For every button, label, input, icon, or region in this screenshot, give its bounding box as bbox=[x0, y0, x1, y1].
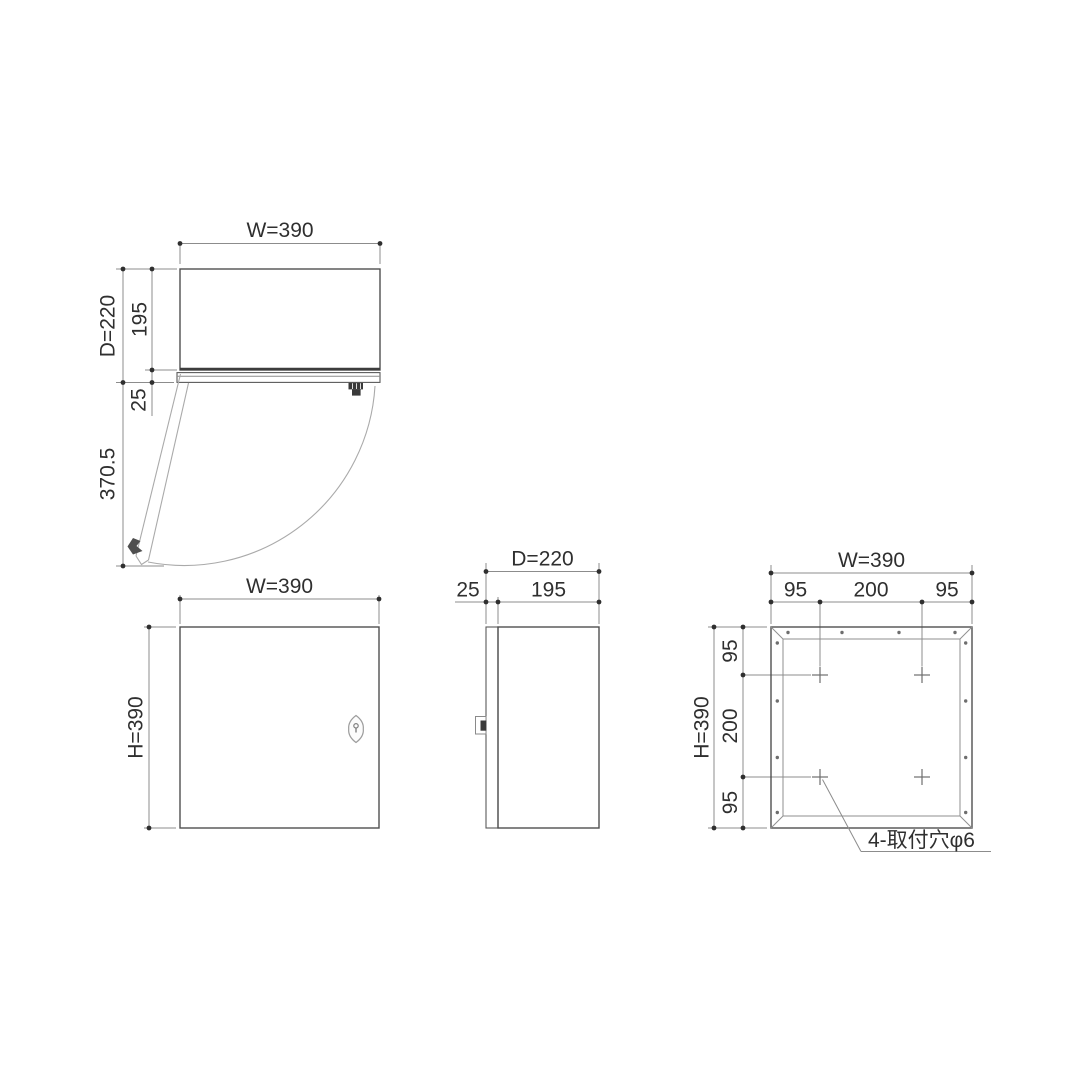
top-view: W=390 D=220 195 25 370.5 bbox=[97, 219, 383, 568]
dim-dot bbox=[970, 571, 975, 576]
dim-dot bbox=[741, 673, 746, 678]
rivet-dot bbox=[964, 641, 967, 644]
flange-miter bbox=[771, 816, 783, 828]
front-view: W=390 H=390 bbox=[125, 575, 382, 830]
latch-grip bbox=[352, 389, 361, 395]
dim-dot bbox=[377, 597, 382, 602]
mounting-holes bbox=[812, 667, 930, 785]
open-door-inner-line bbox=[149, 383, 189, 560]
dim-dot bbox=[496, 600, 501, 605]
dim-label-span-center: 200 bbox=[853, 579, 888, 602]
rivet-dot bbox=[964, 756, 967, 759]
rear-panel-outline bbox=[771, 627, 972, 828]
dim-label-depth-total: D=220 bbox=[97, 295, 120, 357]
dim-dot bbox=[484, 569, 489, 574]
dim-front-width: W=390 bbox=[178, 575, 382, 601]
enclosure-body-outline bbox=[180, 269, 380, 370]
rivet-dot bbox=[953, 631, 956, 634]
dim-dot bbox=[150, 368, 155, 373]
rivet-dot bbox=[786, 631, 789, 634]
dim-dot bbox=[147, 826, 152, 831]
dim-rear-width: W=390 bbox=[769, 549, 975, 575]
dim-rear-hole-spacing-top: 95 200 95 bbox=[769, 579, 975, 605]
dim-dot bbox=[712, 826, 717, 831]
rivet-dot bbox=[776, 811, 779, 814]
dim-dot bbox=[597, 569, 602, 574]
dim-label-width: W=390 bbox=[838, 549, 905, 572]
rivet-dots bbox=[776, 631, 968, 814]
dim-label-offset-bottom: 95 bbox=[719, 791, 742, 814]
dim-dot bbox=[121, 267, 126, 272]
rivet-dot bbox=[964, 811, 967, 814]
dim-dot bbox=[178, 241, 183, 246]
flange-miter bbox=[960, 627, 972, 639]
dim-dot bbox=[484, 600, 489, 605]
dim-top-width: W=390 bbox=[178, 219, 383, 246]
dim-dot bbox=[741, 826, 746, 831]
dim-dot bbox=[769, 571, 774, 576]
handle-side-profile bbox=[476, 717, 487, 735]
dim-dot bbox=[121, 564, 126, 569]
body-side-outline bbox=[498, 627, 599, 828]
dim-dot bbox=[150, 267, 155, 272]
dim-dot bbox=[818, 600, 823, 605]
dim-label-depth-body: 195 bbox=[129, 302, 152, 337]
dim-dot bbox=[121, 380, 126, 385]
dim-label-depth-body: 195 bbox=[531, 579, 566, 602]
flange-miter bbox=[960, 816, 972, 828]
dim-rear-hole-spacing-left: 95 200 95 bbox=[719, 625, 745, 831]
dim-dot bbox=[920, 600, 925, 605]
open-door-end-cap bbox=[136, 556, 149, 565]
dim-front-height: H=390 bbox=[125, 625, 152, 831]
dim-dot bbox=[741, 625, 746, 630]
rivet-dot bbox=[776, 756, 779, 759]
dim-dot bbox=[178, 597, 183, 602]
enclosure-drawing: W=390 D=220 195 25 370.5 bbox=[0, 0, 1080, 1080]
dim-side-depth-total: D=220 bbox=[484, 548, 602, 574]
dim-dot bbox=[378, 241, 383, 246]
door-closed-outline bbox=[177, 373, 380, 383]
dim-dot bbox=[712, 625, 717, 630]
rivet-dot bbox=[776, 641, 779, 644]
dim-label-span-middle: 200 bbox=[719, 708, 742, 743]
rivet-dot bbox=[897, 631, 900, 634]
door-handle bbox=[349, 716, 364, 743]
rivet-dot bbox=[776, 699, 779, 702]
dim-label-door-swing: 370.5 bbox=[97, 448, 120, 501]
dim-label-height: H=390 bbox=[125, 696, 148, 758]
dim-dot bbox=[741, 775, 746, 780]
dim-side-depth-split: 25 195 bbox=[455, 579, 601, 605]
dim-label-depth-total: D=220 bbox=[511, 548, 573, 571]
dim-label-offset-left: 95 bbox=[784, 579, 807, 602]
dim-dot bbox=[150, 380, 155, 385]
dim-label-offset-top: 95 bbox=[719, 639, 742, 662]
dim-top-depth: D=220 195 25 370.5 bbox=[97, 267, 155, 569]
hole-note-label: 4-取付穴φ6 bbox=[868, 829, 975, 852]
dim-rear-height: H=390 bbox=[691, 625, 717, 831]
rivet-dot bbox=[964, 699, 967, 702]
dim-label-offset-right: 95 bbox=[935, 579, 958, 602]
side-view: D=220 25 195 bbox=[455, 548, 601, 829]
dim-dot bbox=[147, 625, 152, 630]
dim-label-width: W=390 bbox=[246, 219, 313, 242]
handle-grip bbox=[481, 721, 487, 731]
dim-dot bbox=[970, 600, 975, 605]
flange-miter bbox=[771, 627, 783, 639]
dim-label-width: W=390 bbox=[246, 575, 313, 598]
dim-dot bbox=[769, 600, 774, 605]
rear-panel-flange bbox=[783, 639, 960, 816]
dim-label-door-thickness: 25 bbox=[456, 579, 479, 602]
dim-label-door-thickness: 25 bbox=[128, 388, 151, 411]
dim-label-height: H=390 bbox=[691, 696, 714, 758]
rivet-dot bbox=[840, 631, 843, 634]
dim-dot bbox=[597, 600, 602, 605]
rear-view: W=390 95 200 95 H=390 95 200 95 bbox=[691, 549, 992, 852]
door-side-outline bbox=[486, 627, 498, 828]
latch-knob bbox=[349, 383, 364, 396]
technical-drawing-canvas: W=390 D=220 195 25 370.5 bbox=[0, 0, 1080, 1080]
